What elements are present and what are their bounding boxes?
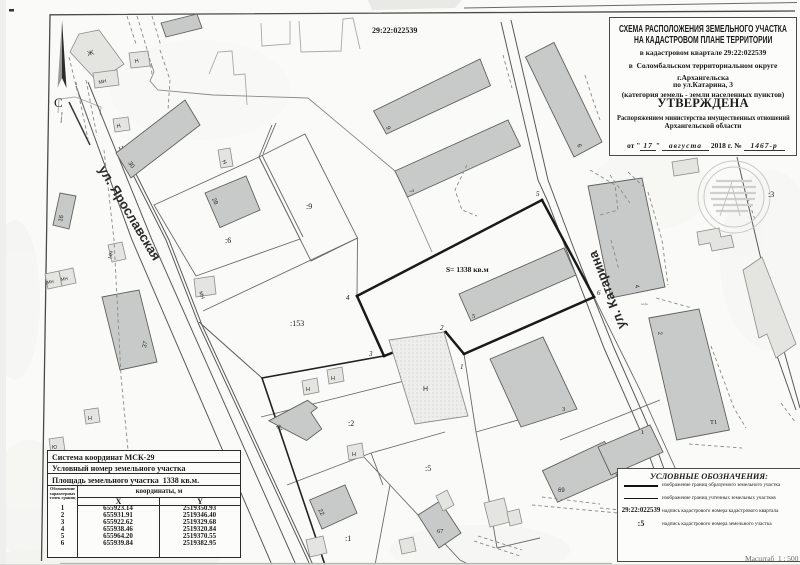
svg-text:кафе: кафе	[641, 302, 648, 306]
svg-text:Н: Н	[352, 452, 356, 458]
svg-text:5: 5	[472, 313, 475, 320]
svg-text::1: :1	[345, 534, 351, 543]
svg-text::9: :9	[306, 202, 312, 211]
svg-text:Т1: Т1	[710, 419, 717, 426]
svg-text:1: 1	[460, 363, 464, 371]
svg-text:2: 2	[440, 324, 444, 332]
svg-text:Н: Н	[423, 386, 428, 393]
svg-text::5: :5	[425, 464, 431, 473]
svg-text::153: :153	[290, 319, 304, 328]
svg-text:3: 3	[368, 350, 373, 358]
svg-text::2: :2	[348, 419, 354, 428]
svg-text::6: :6	[225, 236, 231, 245]
svg-text:3: 3	[562, 406, 565, 413]
svg-text:29:22:022539: 29:22:022539	[372, 26, 417, 35]
svg-text:С: С	[54, 95, 63, 110]
svg-text:1: 1	[641, 429, 644, 436]
svg-text:Н: Н	[88, 416, 92, 422]
svg-text:Н: Н	[331, 376, 335, 382]
svg-text:S= 1338 кв.м: S= 1338 кв.м	[446, 265, 489, 274]
svg-text:Н: Н	[306, 387, 310, 393]
svg-text:4: 4	[346, 294, 350, 302]
svg-text:69: 69	[558, 488, 565, 494]
svg-text:67: 67	[437, 528, 444, 535]
svg-text:5: 5	[536, 190, 540, 198]
svg-text::3: :3	[768, 190, 774, 199]
